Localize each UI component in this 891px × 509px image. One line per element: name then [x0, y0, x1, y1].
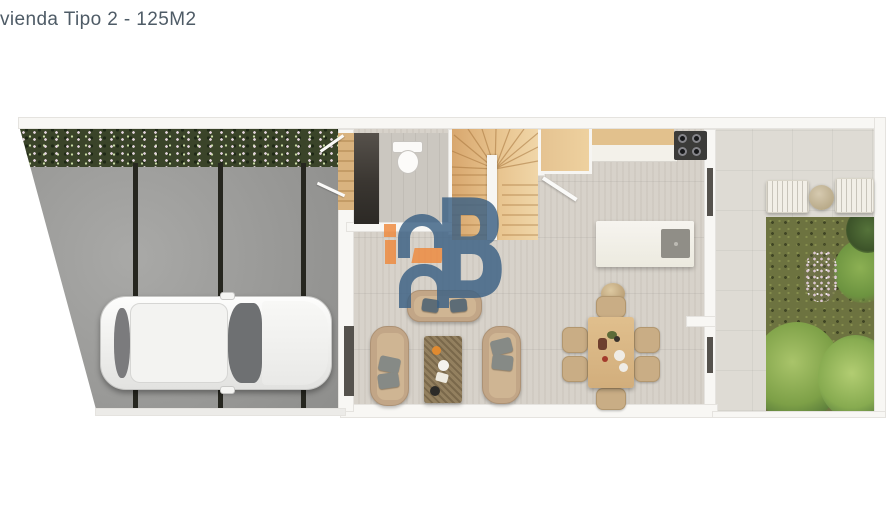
wall-bottom	[340, 404, 718, 418]
burner	[692, 147, 701, 156]
decor-bowl	[430, 386, 440, 396]
front-door	[344, 326, 354, 396]
table-decor	[602, 356, 608, 362]
burner	[692, 134, 701, 143]
garden	[766, 217, 876, 411]
car-hood	[262, 301, 328, 385]
page-title: vienda Tipo 2 - 125M2	[0, 9, 300, 31]
car-roof	[130, 303, 228, 383]
table-plate	[619, 363, 628, 372]
dining-chair	[596, 388, 626, 410]
driveway-curb	[95, 408, 346, 416]
car-rear-window	[114, 308, 130, 378]
table-bottle	[614, 336, 620, 342]
patio-door-dining	[707, 337, 713, 373]
burner	[678, 147, 687, 156]
lounge-chair	[835, 178, 874, 213]
dining-chair	[634, 327, 660, 353]
pillow	[377, 372, 400, 390]
logo-letter: B	[433, 182, 509, 320]
car-mirror	[220, 292, 235, 300]
kitchen-counter	[592, 145, 677, 162]
sink-drain	[674, 242, 678, 246]
table-decor	[598, 338, 607, 350]
car	[100, 296, 332, 390]
burner	[678, 134, 687, 143]
dining-chair	[634, 356, 660, 382]
wall-right	[874, 117, 886, 418]
toilet-bowl	[397, 150, 419, 174]
pillow	[491, 354, 513, 371]
logo-accent	[385, 240, 396, 264]
car-mirror	[220, 386, 235, 394]
logo-accent	[384, 224, 396, 237]
sofa	[482, 326, 521, 404]
patio-door-kitchen	[707, 168, 713, 216]
watermark-logo: B	[383, 196, 533, 316]
lounge-chair	[766, 180, 809, 213]
stair-landing	[541, 129, 592, 174]
decor-flowers	[432, 346, 441, 355]
floor-plan-page: vienda Tipo 2 - 125M2	[0, 0, 891, 509]
sofa	[370, 326, 409, 406]
shower-unit	[354, 133, 379, 224]
flower-bed	[18, 129, 346, 167]
table-plate	[614, 350, 625, 361]
decor-dish	[438, 360, 449, 371]
dining-table	[588, 317, 634, 388]
side-gate	[338, 133, 355, 210]
driveway	[18, 129, 346, 413]
wall-bottom-patio	[712, 411, 886, 418]
wall-top	[18, 117, 886, 129]
flower-patch	[804, 250, 838, 302]
dining-chair	[596, 296, 626, 318]
wall-dining-stub	[686, 316, 716, 327]
dining-chair	[562, 356, 588, 382]
dining-chair	[562, 327, 588, 353]
car-windshield	[228, 303, 262, 383]
pouf	[809, 185, 834, 210]
